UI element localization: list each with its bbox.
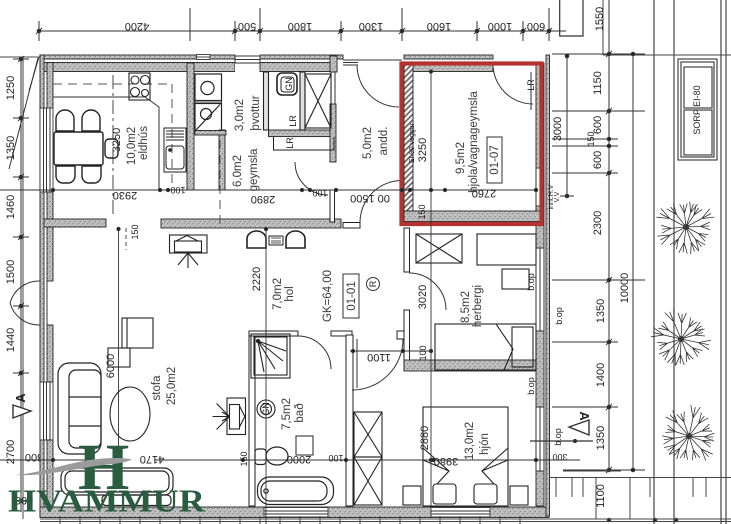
svg-text:LR: LR — [288, 115, 298, 127]
svg-text:1400: 1400 — [595, 363, 607, 387]
svg-text:00 1500: 00 1500 — [350, 192, 390, 204]
svg-text:8,5m2: 8,5m2 — [460, 291, 472, 323]
svg-text:hjola/vagnageymsla: hjola/vagnageymsla — [468, 91, 480, 193]
svg-text:100: 100 — [170, 185, 185, 195]
svg-text:6000: 6000 — [105, 354, 117, 378]
svg-text:150: 150 — [130, 224, 140, 239]
svg-text:b.op: b.op — [526, 377, 536, 395]
svg-text:13,0m2: 13,0m2 — [464, 422, 476, 460]
svg-text:2930: 2930 — [113, 189, 137, 201]
svg-text:EI-90 veggur: EI-90 veggur — [409, 122, 416, 163]
svg-text:1250: 1250 — [5, 76, 17, 100]
svg-text:100: 100 — [328, 453, 343, 463]
svg-text:4170: 4170 — [140, 453, 164, 465]
svg-text:1000: 1000 — [488, 20, 512, 32]
svg-text:geymsla: geymsla — [248, 148, 260, 191]
svg-text:1550: 1550 — [594, 7, 606, 31]
svg-text:6,0m2: 6,0m2 — [232, 155, 244, 187]
svg-text:2220: 2220 — [251, 267, 263, 291]
svg-text:1350: 1350 — [5, 136, 17, 160]
svg-text:hol: hol — [284, 286, 296, 301]
svg-text:2700: 2700 — [5, 440, 17, 464]
svg-text:GN: GN — [284, 77, 294, 91]
svg-text:stofa: stofa — [151, 375, 163, 401]
svg-text:3000: 3000 — [552, 117, 564, 141]
svg-text:7,5m2: 7,5m2 — [281, 398, 293, 430]
svg-text:1800: 1800 — [288, 20, 312, 32]
svg-text:3250: 3250 — [417, 138, 429, 162]
svg-text:R: R — [368, 280, 378, 287]
svg-text:andd.: andd. — [378, 127, 390, 156]
svg-text:150: 150 — [586, 131, 596, 146]
svg-text:HVAMMUR: HVAMMUR — [8, 484, 206, 519]
svg-text:herbergi: herbergi — [472, 285, 484, 327]
svg-text:1460: 1460 — [5, 195, 17, 219]
svg-text:1500: 1500 — [5, 260, 17, 284]
svg-text:b.op: b.op — [553, 428, 563, 446]
svg-text:600: 600 — [527, 20, 545, 32]
svg-text:600: 600 — [592, 116, 604, 134]
svg-text:9,5m2: 9,5m2 — [455, 142, 467, 174]
svg-text:100: 100 — [312, 188, 327, 198]
svg-text:10000: 10000 — [619, 273, 631, 304]
svg-text:2000: 2000 — [287, 453, 311, 465]
svg-text:LR: LR — [285, 137, 295, 149]
svg-text:3980: 3980 — [434, 455, 458, 467]
svg-text:1150: 1150 — [592, 71, 604, 95]
svg-text:1440: 1440 — [5, 328, 17, 352]
svg-text:1100: 1100 — [595, 484, 607, 508]
svg-text:7,0m2: 7,0m2 — [272, 278, 284, 310]
svg-text:eldhús: eldhús — [138, 126, 150, 160]
svg-text:150: 150 — [239, 451, 249, 466]
svg-text:hjón: hjón — [479, 433, 491, 455]
svg-text:2890: 2890 — [251, 193, 275, 205]
svg-text:A: A — [13, 393, 28, 403]
svg-text:þvottur: þvottur — [250, 95, 262, 130]
svg-text:600: 600 — [592, 151, 604, 169]
svg-text:300: 300 — [552, 452, 567, 462]
svg-text:GN: GN — [261, 402, 271, 416]
svg-text:3020: 3020 — [417, 285, 429, 309]
svg-text:GK=64,00: GK=64,00 — [322, 270, 334, 322]
svg-text:3,0m2: 3,0m2 — [234, 99, 246, 131]
svg-text:V.V: V.V — [554, 191, 561, 202]
svg-text:1350: 1350 — [595, 299, 607, 323]
svg-text:4200: 4200 — [125, 20, 149, 32]
svg-text:bað: bað — [294, 403, 306, 422]
svg-text:b.op: b.op — [554, 307, 564, 325]
svg-text:01-01: 01-01 — [346, 281, 358, 310]
svg-text:5,0m2: 5,0m2 — [362, 127, 374, 159]
svg-text:1100: 1100 — [367, 351, 391, 363]
svg-text:2880: 2880 — [419, 426, 431, 450]
svg-text:SORP EI-80: SORP EI-80 — [692, 85, 702, 134]
svg-text:LR: LR — [526, 79, 536, 91]
svg-text:A: A — [577, 411, 592, 421]
svg-text:100: 100 — [418, 345, 428, 360]
svg-text:25,0m2: 25,0m2 — [166, 367, 178, 405]
svg-text:2300: 2300 — [592, 211, 604, 235]
svg-text:1300: 1300 — [359, 20, 383, 32]
svg-text:01-07: 01-07 — [489, 145, 501, 174]
svg-text:1350: 1350 — [595, 426, 607, 450]
svg-text:10,0m2: 10,0m2 — [126, 127, 138, 165]
svg-text:500: 500 — [238, 20, 256, 32]
svg-text:b.op: b.op — [526, 273, 536, 291]
svg-text:150: 150 — [417, 204, 427, 219]
svg-text:1600: 1600 — [427, 20, 451, 32]
